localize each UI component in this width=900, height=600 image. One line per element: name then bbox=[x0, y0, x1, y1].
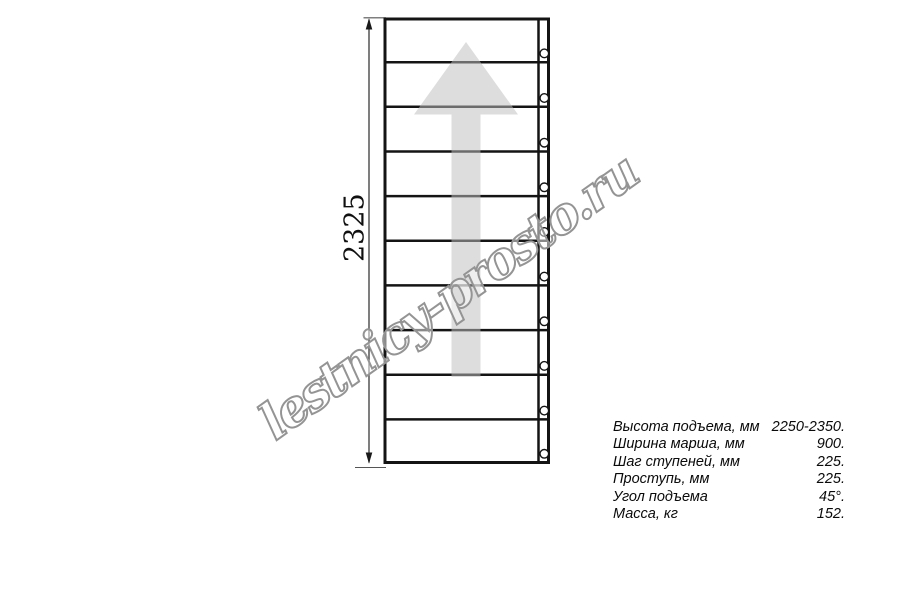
spec-value: 45°. bbox=[819, 489, 845, 506]
bolt-hole bbox=[540, 362, 549, 371]
spec-label: Проступь, мм bbox=[613, 471, 709, 488]
spec-row: Проступь, мм 225. bbox=[613, 471, 845, 488]
spec-row: Шаг ступеней, мм 225. bbox=[613, 454, 845, 471]
dimension-arrowhead-bottom-icon bbox=[366, 453, 373, 464]
spec-value: 225. bbox=[817, 454, 845, 471]
bolt-hole bbox=[540, 450, 549, 459]
spec-label: Масса, кг bbox=[613, 506, 678, 523]
spec-label: Высота подъема, мм bbox=[613, 419, 760, 436]
bolt-hole bbox=[540, 272, 549, 281]
dimension-label: 2325 bbox=[340, 193, 371, 262]
bolt-hole bbox=[540, 49, 549, 58]
spec-label: Шаг ступеней, мм bbox=[613, 454, 740, 471]
bolt-hole bbox=[540, 138, 549, 147]
spec-label: Угол подъема bbox=[613, 489, 708, 506]
page: 2325 bbox=[0, 0, 900, 600]
spec-table: Высота подъема, мм 2250-2350. Ширина мар… bbox=[613, 419, 845, 523]
spec-value: 900. bbox=[817, 436, 845, 453]
spec-label: Ширина марша, мм bbox=[613, 436, 745, 453]
spec-row: Угол подъема 45°. bbox=[613, 489, 845, 506]
dimension-arrowhead-top-icon bbox=[366, 18, 373, 29]
spec-value: 152. bbox=[817, 506, 845, 523]
spec-row: Масса, кг 152. bbox=[613, 506, 845, 523]
bolt-hole bbox=[540, 317, 549, 326]
spec-row: Ширина марша, мм 900. bbox=[613, 436, 845, 453]
spec-value: 2250-2350. bbox=[772, 419, 845, 436]
spec-value: 225. bbox=[817, 471, 845, 488]
watermark-text: lestnicy-prosto.ru bbox=[248, 141, 650, 452]
bolt-hole bbox=[540, 406, 549, 415]
spec-row: Высота подъема, мм 2250-2350. bbox=[613, 419, 845, 436]
bolt-hole bbox=[540, 94, 549, 103]
